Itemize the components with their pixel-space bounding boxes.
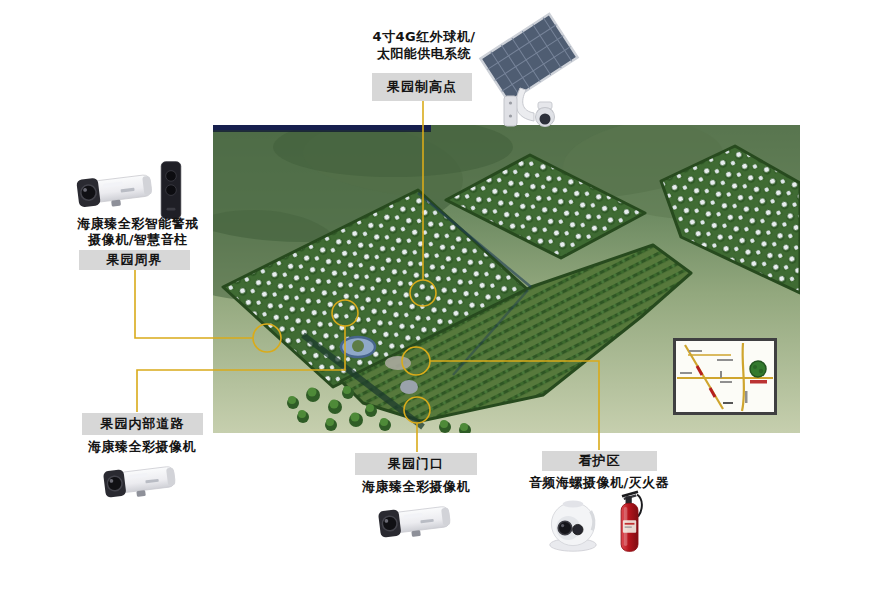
highpoint-device-line2: 太阳能供电系统 xyxy=(354,45,494,62)
care-area-label: 看护区 xyxy=(542,451,657,471)
turret-camera-icon xyxy=(541,494,605,558)
perimeter-label: 果园周界 xyxy=(79,250,190,270)
gate-label: 果园门口 xyxy=(355,453,477,475)
road-map-inset xyxy=(673,338,777,415)
aerial-topbar xyxy=(213,125,431,131)
highpoint-device-name: 4寸4G红外球机/ 太阳能供电系统 xyxy=(354,28,494,62)
internal-road-device-name: 海康臻全彩摄像机 xyxy=(72,438,212,455)
perimeter-device-line2: 摄像机/智慧音柱 xyxy=(60,232,216,248)
care-area-device-name: 音频海螺摄像机/灭火器 xyxy=(524,474,674,491)
park-icon xyxy=(750,361,766,377)
highpoint-device-line1: 4寸4G红外球机/ xyxy=(354,28,494,45)
orchard-aerial-image xyxy=(213,125,800,433)
perimeter-device-line1: 海康臻全彩智能警戒 xyxy=(60,216,216,232)
internal-road-label: 果园内部道路 xyxy=(82,413,203,435)
fire-extinguisher-icon xyxy=(614,488,646,560)
highpoint-label: 果园制高点 xyxy=(372,73,472,101)
bullet-camera-icon xyxy=(70,164,162,220)
gate-device-name: 海康臻全彩摄像机 xyxy=(346,478,486,495)
bullet-camera-icon xyxy=(97,456,185,510)
bullet-camera-icon xyxy=(372,496,460,550)
perimeter-device-name: 海康臻全彩智能警戒 摄像机/智慧音柱 xyxy=(60,216,216,248)
orchard-surveillance-diagram: 4寸4G红外球机/ 太阳能供电系统 果园制高点 xyxy=(0,0,880,595)
solar-panel-ptz-camera-icon xyxy=(474,8,584,132)
